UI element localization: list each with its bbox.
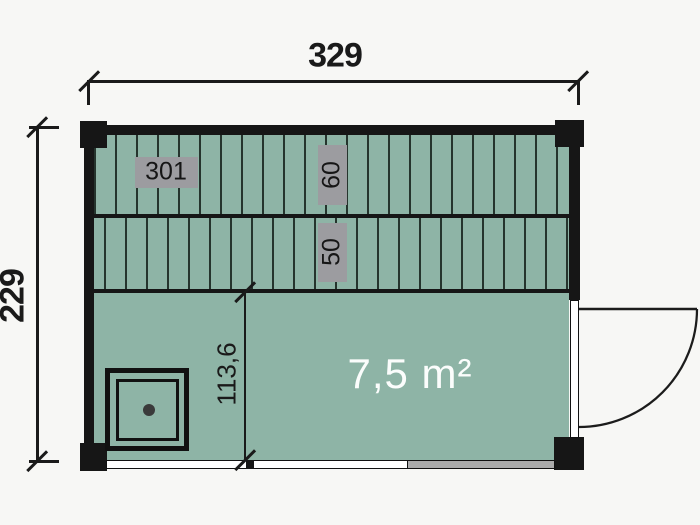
corner-post-top-right bbox=[555, 120, 584, 147]
top-dimension-extension-right bbox=[577, 80, 580, 105]
floor-plan-canvas: 329 229 301 60 50 bbox=[0, 0, 700, 525]
top-dimension-line bbox=[88, 80, 579, 83]
corner-post-bottom-left bbox=[80, 443, 107, 471]
door-swing bbox=[560, 295, 700, 440]
corner-post-top-left bbox=[80, 121, 107, 148]
dimension-line-wall-tick bbox=[246, 460, 254, 469]
bottom-wall-panel bbox=[106, 460, 408, 469]
wall-left bbox=[84, 125, 94, 460]
room-depth-text: 113,6 bbox=[212, 342, 243, 405]
room-depth-dimension-line bbox=[244, 291, 246, 461]
wall-right-upper bbox=[569, 125, 580, 300]
wall-top bbox=[84, 125, 580, 135]
corner-post-bottom-right bbox=[554, 437, 584, 470]
stove-center-dot bbox=[143, 404, 155, 416]
bench-depth-lower-text: 50 bbox=[318, 238, 347, 266]
door-swing-arc bbox=[579, 309, 697, 427]
bench-depth-upper-text: 60 bbox=[318, 161, 347, 189]
left-dimension-line bbox=[36, 127, 39, 462]
width-dimension-text: 329 bbox=[308, 37, 362, 76]
bench-front-edge-line bbox=[94, 289, 569, 293]
bench-length-text: 301 bbox=[145, 158, 187, 187]
bottom-wall-threshold bbox=[407, 460, 555, 469]
height-dimension-text: 229 bbox=[0, 269, 33, 323]
area-text: 7,5 m² bbox=[347, 350, 472, 398]
